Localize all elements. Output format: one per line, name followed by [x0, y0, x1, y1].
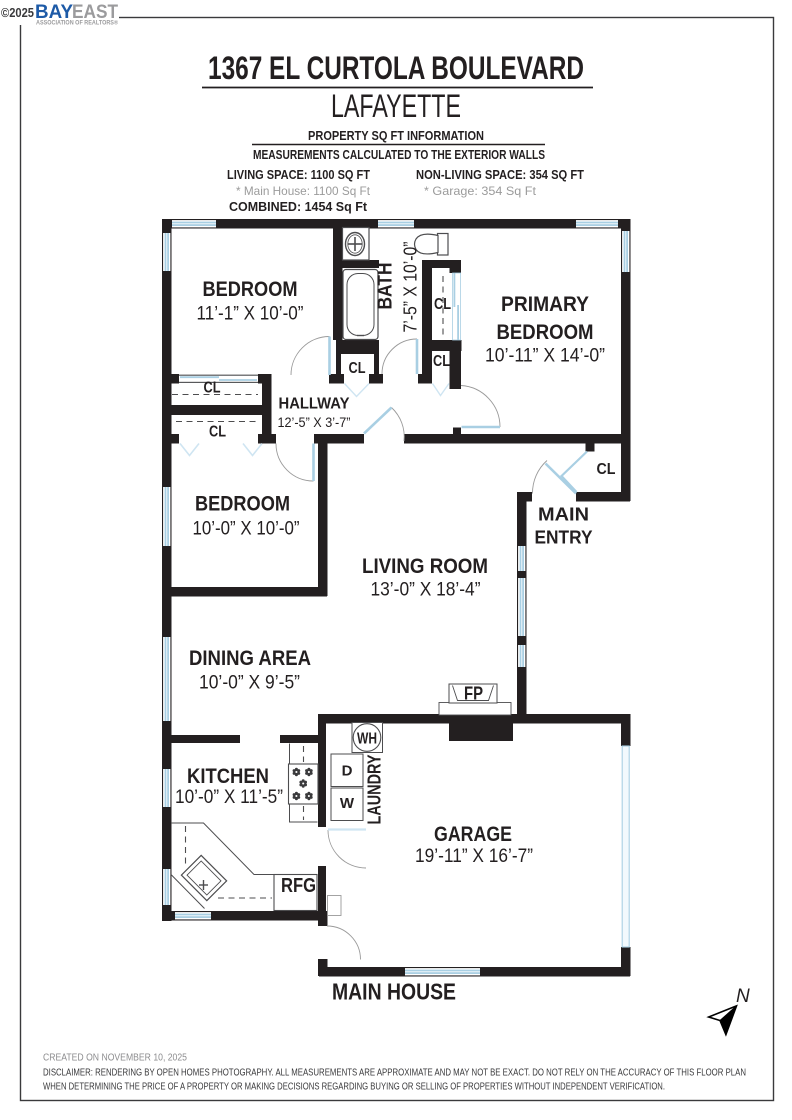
svg-text:1367 EL CURTOLA BOULEVARD: 1367 EL CURTOLA BOULEVARD: [208, 50, 584, 86]
svg-text:LIVING ROOM: LIVING ROOM: [362, 555, 488, 578]
svg-text:DISCLAIMER: RENDERING BY OPEN: DISCLAIMER: RENDERING BY OPEN HOMES PHOT…: [43, 1068, 746, 1079]
svg-text:WH: WH: [357, 731, 377, 748]
svg-text:D: D: [342, 763, 353, 780]
svg-text:FP: FP: [464, 683, 483, 704]
svg-text:MAIN: MAIN: [538, 505, 589, 525]
svg-text:19’-11” X 16’-7”: 19’-11” X 16’-7”: [415, 846, 533, 867]
svg-text:10’-0” X 10’-0”: 10’-0” X 10’-0”: [193, 519, 300, 540]
svg-text:©2025: ©2025: [1, 5, 34, 20]
svg-text:CL: CL: [349, 360, 366, 377]
svg-text:KITCHEN: KITCHEN: [187, 765, 269, 788]
svg-text:N: N: [736, 986, 750, 1007]
svg-text:LAFAYETTE: LAFAYETTE: [331, 88, 461, 124]
svg-text:10’-11” X 14’-0”: 10’-11” X 14’-0”: [485, 346, 605, 367]
svg-text:* Main House: 1100 Sq Ft: * Main House: 1100 Sq Ft: [236, 184, 371, 198]
svg-text:LIVING SPACE: 1100 SQ FT: LIVING SPACE: 1100 SQ FT: [227, 168, 370, 182]
svg-text:MAIN HOUSE: MAIN HOUSE: [332, 979, 456, 1005]
svg-text:ENTRY: ENTRY: [535, 528, 593, 548]
svg-text:COMBINED: 1454 Sq Ft: COMBINED: 1454 Sq Ft: [229, 200, 368, 214]
svg-text:W: W: [340, 795, 355, 812]
svg-text:PRIMARY: PRIMARY: [501, 293, 589, 316]
svg-text:BEDROOM: BEDROOM: [497, 321, 594, 344]
svg-text:CL: CL: [433, 353, 450, 370]
svg-text:DINING AREA: DINING AREA: [189, 647, 311, 670]
svg-text:CL: CL: [434, 296, 451, 313]
svg-text:12’-5” X 3’-7”: 12’-5” X 3’-7”: [278, 415, 351, 430]
svg-text:PROPERTY SQ FT INFORMATION: PROPERTY SQ FT INFORMATION: [308, 129, 484, 143]
svg-text:CL: CL: [597, 461, 616, 478]
svg-text:MEASUREMENTS CALCULATED TO THE: MEASUREMENTS CALCULATED TO THE EXTERIOR …: [253, 148, 545, 162]
svg-text:BEDROOM: BEDROOM: [195, 493, 290, 516]
svg-text:13’-0” X 18’-4”: 13’-0” X 18’-4”: [371, 580, 481, 601]
svg-text:CREATED ON NOVEMBER 10, 2025: CREATED ON NOVEMBER 10, 2025: [43, 1053, 187, 1064]
svg-text:ASSOCIATION OF REALTORS®: ASSOCIATION OF REALTORS®: [36, 19, 118, 27]
svg-text:BEDROOM: BEDROOM: [203, 278, 298, 301]
svg-text:CL: CL: [209, 424, 226, 441]
svg-text:WHEN DETERMINING THE PRICE OF: WHEN DETERMINING THE PRICE OF A PROPERTY…: [43, 1082, 665, 1093]
svg-text:RFG: RFG: [281, 875, 316, 897]
svg-text:10’-0” X 11’-5”: 10’-0” X 11’-5”: [175, 787, 283, 808]
svg-text:NON-LIVING SPACE: 354 SQ FT: NON-LIVING SPACE: 354 SQ FT: [416, 168, 584, 182]
svg-text:* Garage: 354 Sq Ft: * Garage: 354 Sq Ft: [424, 184, 537, 198]
svg-text:10’-0” X 9’-5”: 10’-0” X 9’-5”: [199, 673, 300, 694]
svg-text:7’-5” X 10’-0”: 7’-5” X 10’-0”: [400, 242, 421, 333]
svg-text:LAUNDRY: LAUNDRY: [365, 755, 385, 825]
svg-text:GARAGE: GARAGE: [434, 823, 512, 846]
svg-text:HALLWAY: HALLWAY: [279, 396, 350, 413]
svg-text:BATH: BATH: [374, 263, 397, 310]
svg-text:11’-1” X 10’-0”: 11’-1” X 10’-0”: [197, 304, 304, 325]
svg-text:CL: CL: [204, 380, 221, 397]
